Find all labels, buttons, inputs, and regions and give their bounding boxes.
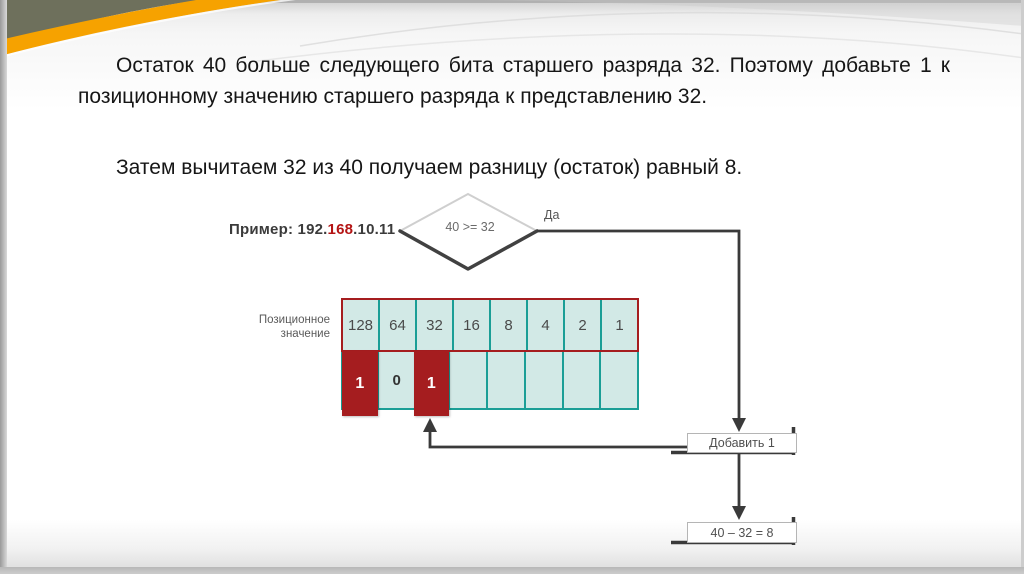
- position-value-cell: 32: [415, 300, 452, 350]
- positional-value-label: Позиционное значение: [228, 313, 330, 341]
- bit-cell: [448, 352, 486, 408]
- slide: Остаток 40 больше следующего бита старше…: [0, 0, 1024, 574]
- paragraph-remainder: Остаток 40 больше следующего бита старше…: [78, 50, 950, 112]
- diamond-bottom-edges: [400, 231, 537, 269]
- position-value-cell: 128: [343, 300, 378, 350]
- subtract-result-box: 40 – 32 = 8: [687, 522, 797, 543]
- arrowhead-down-into-subtract-box: [732, 506, 746, 520]
- bit-cell: 1: [414, 351, 450, 416]
- orange-stripe: [0, 0, 345, 56]
- bit-cell: 1: [342, 351, 378, 416]
- positional-value-label-line2: значение: [228, 327, 330, 341]
- position-value-cell: 8: [489, 300, 526, 350]
- position-value-cell: 16: [452, 300, 489, 350]
- example-ip-label: Пример: 192.168.10.11: [229, 221, 395, 238]
- stripe-highlight: [0, 0, 345, 57]
- example-ip-suffix: .10.11: [353, 221, 395, 238]
- position-value-cell: 64: [378, 300, 415, 350]
- arrowhead-up-into-bit-cell: [423, 418, 437, 432]
- bit-cell: [562, 352, 600, 408]
- example-ip-prefix: Пример: 192.: [229, 221, 328, 238]
- position-value-cell: 2: [563, 300, 600, 350]
- swoosh-shade: [480, 0, 1024, 26]
- bit-cell: [486, 352, 524, 408]
- bit-cell: 0: [377, 352, 415, 408]
- add-one-box: Добавить 1: [687, 433, 797, 453]
- olive-band: [0, 0, 200, 50]
- paragraph-subtract: Затем вычитаем 32 из 40 получаем разницу…: [78, 152, 950, 183]
- swoosh-arc-1: [300, 13, 1024, 46]
- viewer-frame-left: [0, 0, 7, 574]
- bits-row: 1 0 1: [341, 352, 639, 410]
- example-ip-highlight-octet: 168: [328, 221, 354, 238]
- positional-value-row: 128 64 32 16 8 4 2 1: [341, 298, 639, 352]
- decision-condition-text: 40 >= 32: [410, 220, 530, 234]
- position-value-cell: 4: [526, 300, 563, 350]
- top-edge-line: [0, 0, 1024, 3]
- arrowhead-down-into-add-box: [732, 418, 746, 432]
- feedback-line-to-table: [430, 432, 687, 447]
- bit-cell: [524, 352, 562, 408]
- yes-branch-label: Да: [544, 208, 559, 222]
- viewer-frame-bottom: [0, 567, 1024, 574]
- position-value-cell: 1: [600, 300, 637, 350]
- positional-value-label-line1: Позиционное: [228, 313, 330, 327]
- bit-cell: [599, 352, 637, 408]
